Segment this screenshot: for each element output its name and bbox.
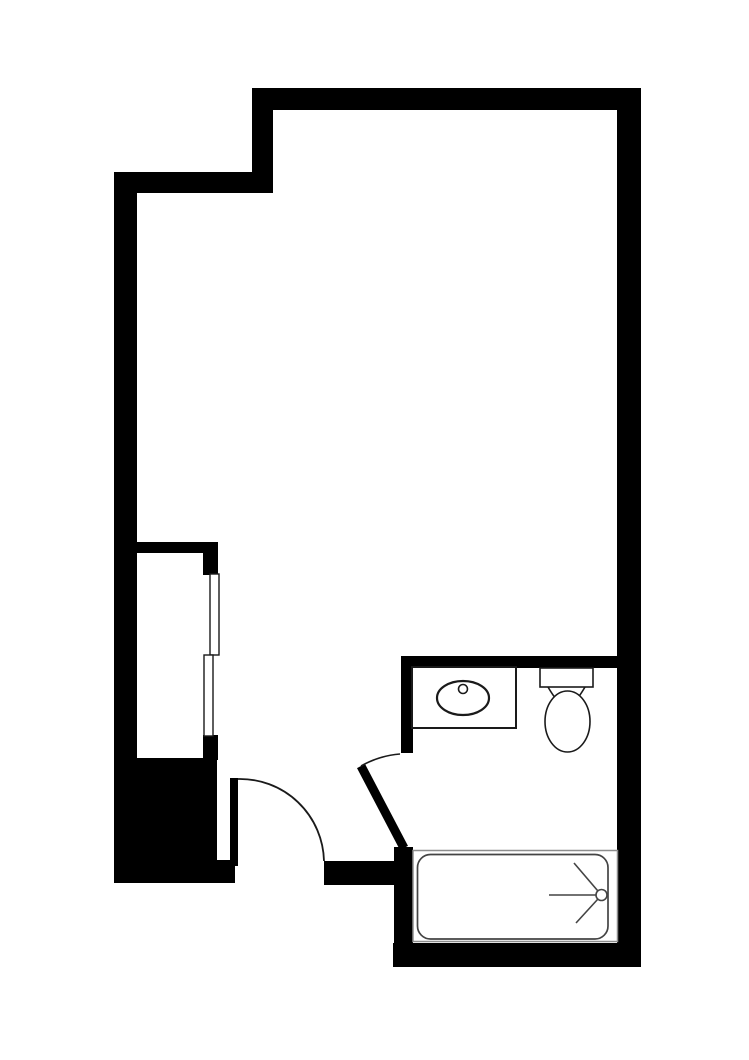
wall-right xyxy=(617,88,641,967)
wall-closet-top xyxy=(114,542,218,553)
shower-head-dot xyxy=(596,890,607,901)
bathtub-area xyxy=(413,851,618,942)
wall-top xyxy=(252,88,641,110)
floor-plan-drawing xyxy=(0,0,749,1060)
wall-entry-side xyxy=(324,861,394,885)
wall-entry-jamb-vertical xyxy=(394,847,413,967)
wall-bottom xyxy=(393,943,641,967)
sink-faucet-dot xyxy=(459,685,468,694)
bathtub xyxy=(418,855,609,940)
closet-sliding-doors xyxy=(204,574,219,736)
walls xyxy=(114,88,641,967)
toilet-tank xyxy=(540,668,593,687)
wall-notch-horizontal xyxy=(114,172,273,193)
toilet-neck-left xyxy=(548,687,555,697)
wall-closet-jamb-top xyxy=(203,542,218,575)
closet-slider-panel-upper xyxy=(210,574,219,655)
toilet-bowl xyxy=(545,691,590,752)
wall-closet-base xyxy=(114,758,217,883)
bathroom-door xyxy=(361,754,404,848)
closet-slider-panel-lower xyxy=(204,655,213,736)
entry-door xyxy=(230,778,324,866)
floor-plan-canvas xyxy=(0,0,749,1060)
entry-door-swing-arc xyxy=(238,779,324,861)
entry-door-leaf xyxy=(230,778,238,866)
sink-vanity xyxy=(412,667,516,728)
bathroom-door-leaf xyxy=(361,766,404,848)
toilet xyxy=(540,668,593,752)
bathroom-door-swing-arc xyxy=(361,754,400,766)
wall-closet-jamb-bottom xyxy=(203,735,218,760)
